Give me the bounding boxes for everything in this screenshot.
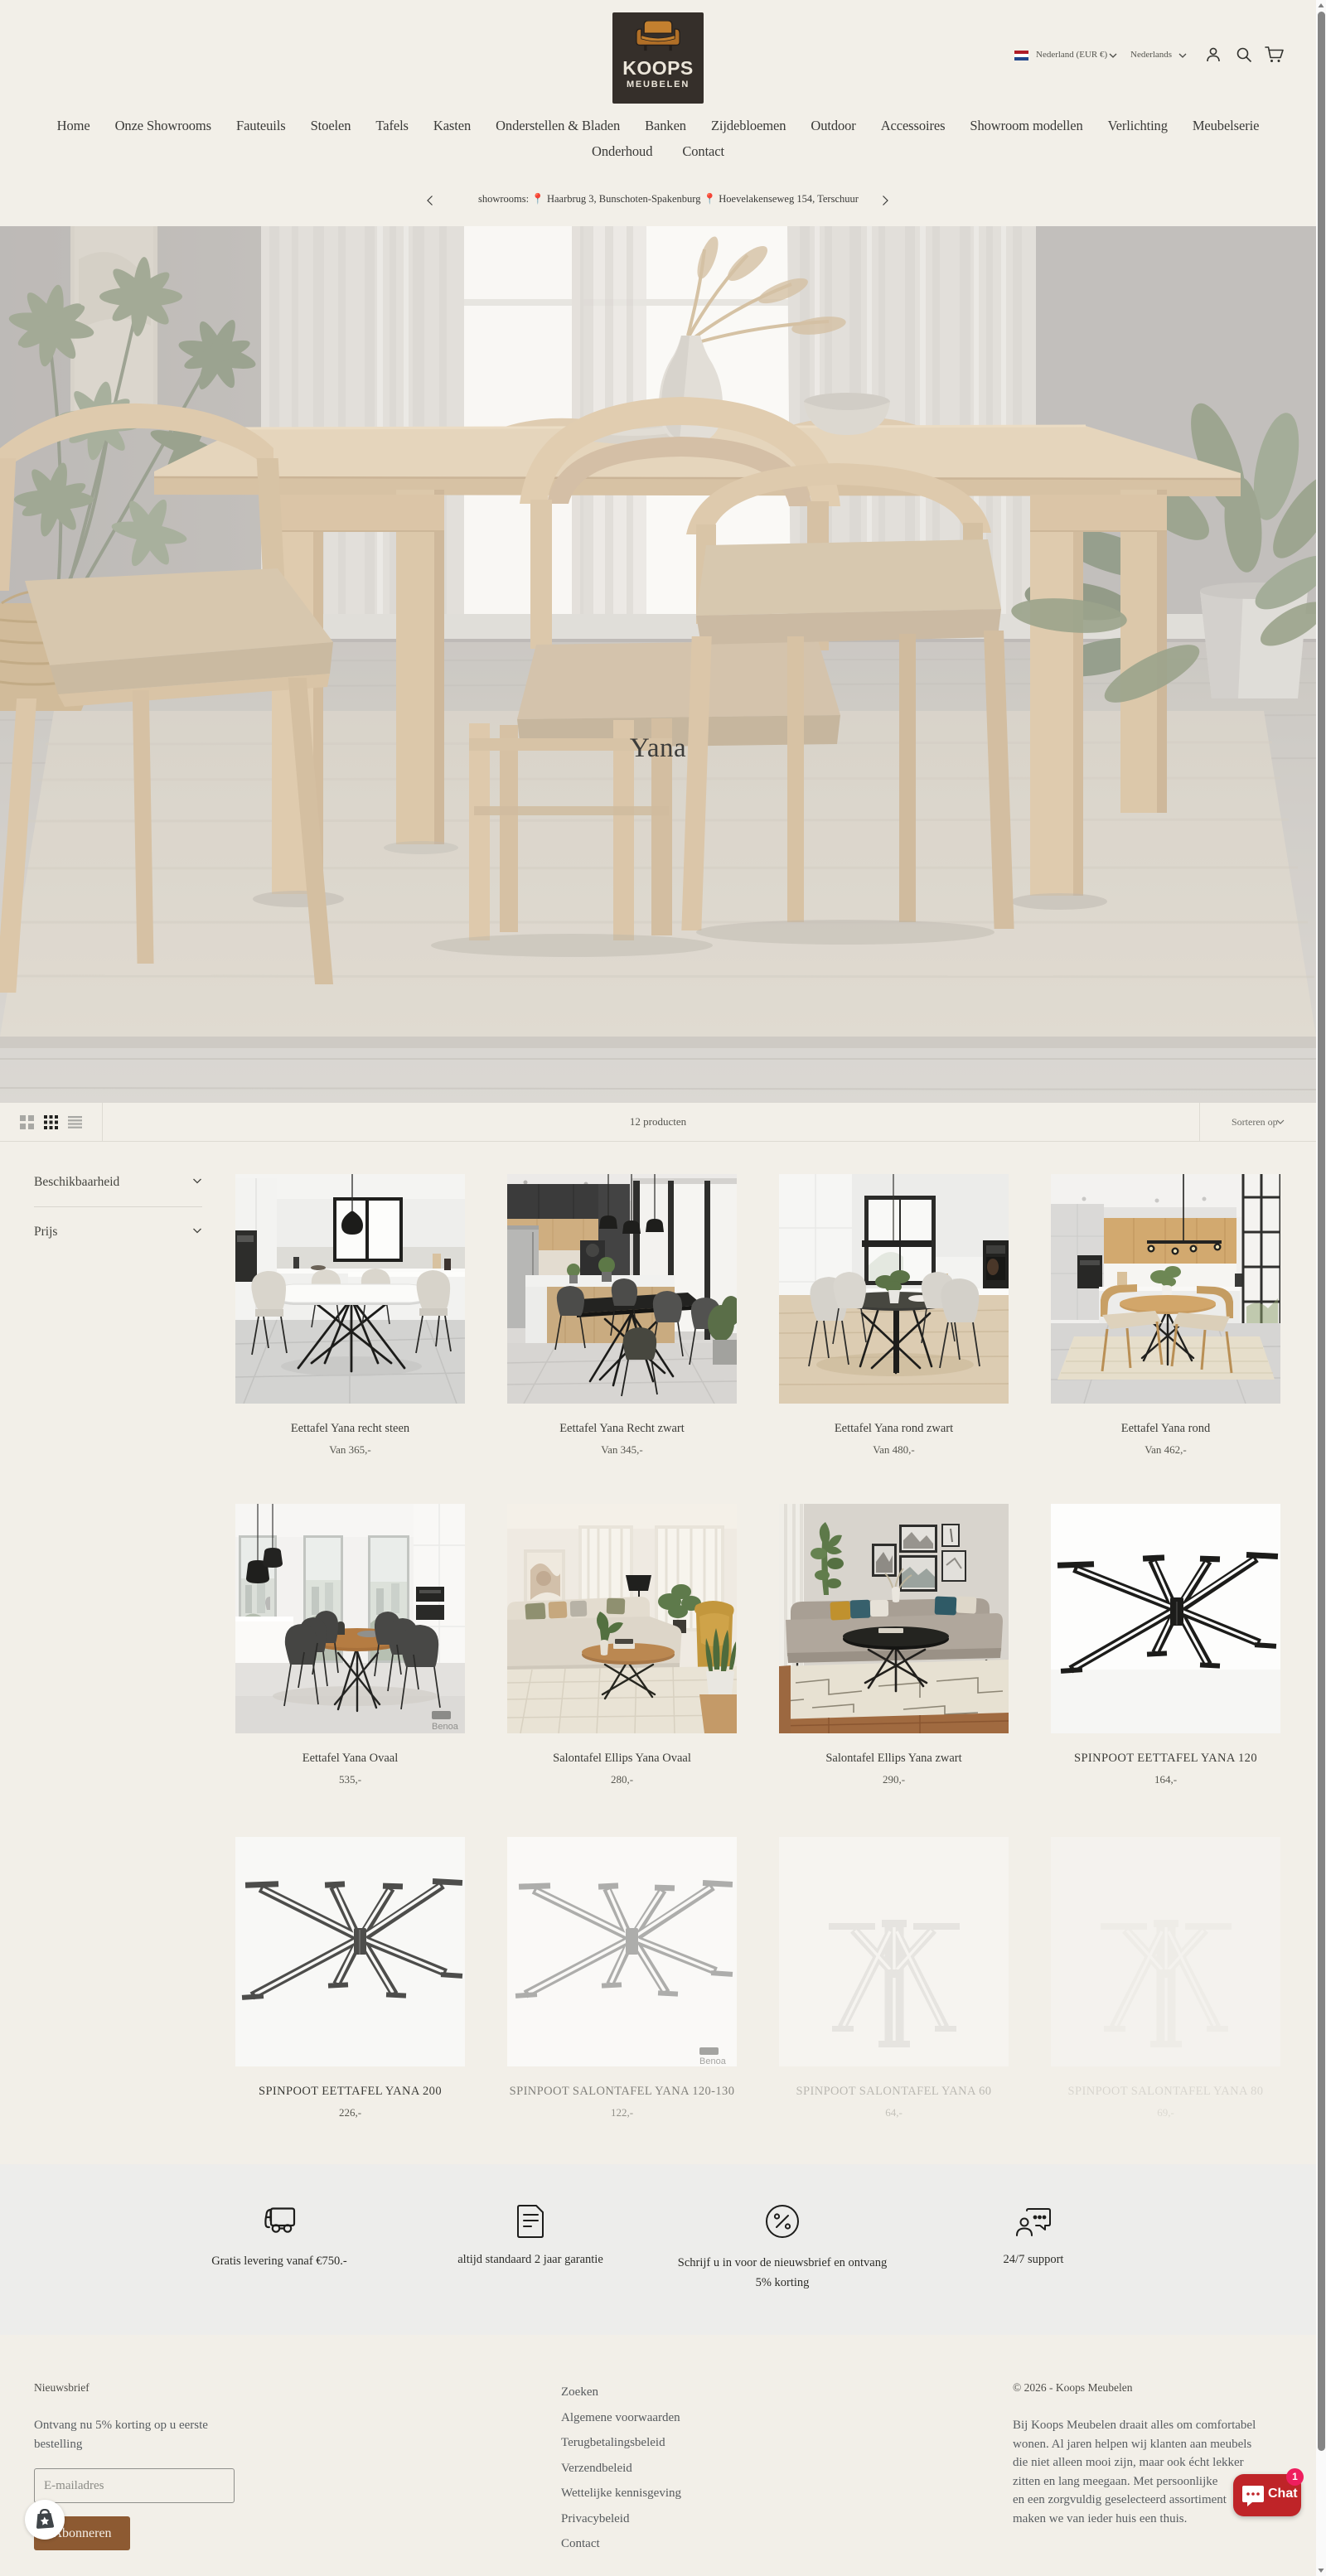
svg-text:Benoa: Benoa xyxy=(432,1722,459,1732)
svg-text:Benoa: Benoa xyxy=(699,2056,727,2066)
